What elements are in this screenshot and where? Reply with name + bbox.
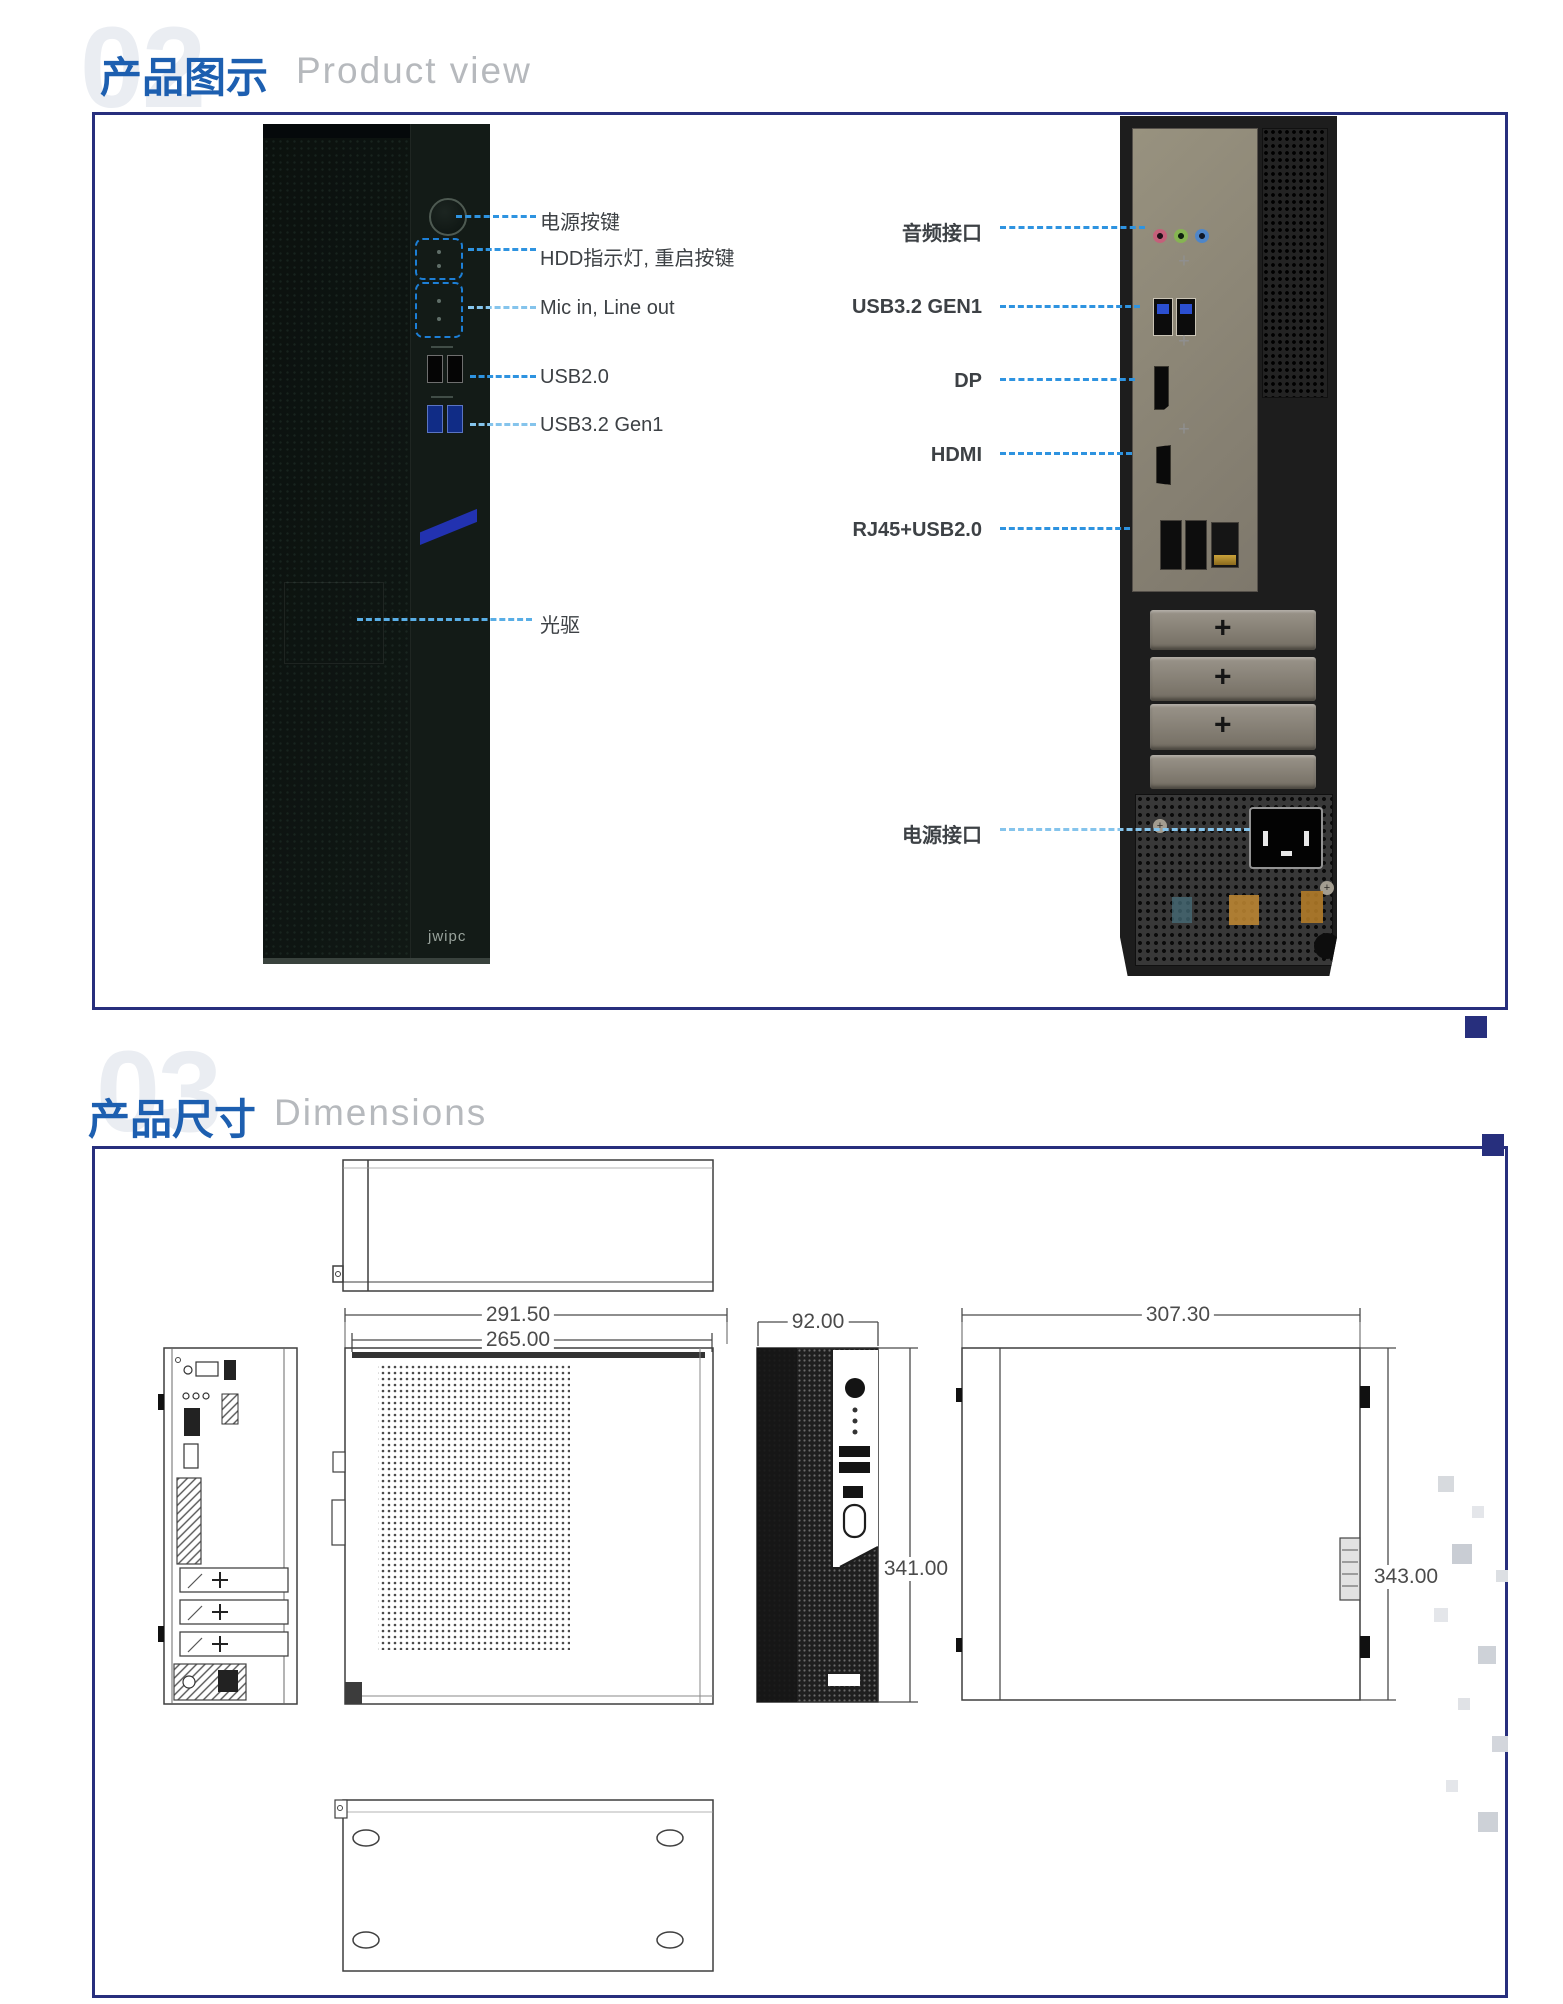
hdmi-port-icon [1156,445,1171,485]
usb-glyph-icon [431,346,453,348]
power-inlet-icon [1249,807,1323,869]
screw-icon: + [1178,331,1190,354]
leader-hdmi [1000,452,1132,455]
label-rj45-usb2: RJ45+USB2.0 [812,519,982,542]
psu-label-patch [1172,897,1192,923]
leader-rj45 [1000,527,1130,530]
leader-dp [1000,378,1135,381]
rear-view-drawing [158,1348,297,1704]
hdd-led-icon [437,250,441,254]
mosaic-square [1452,1544,1472,1564]
mic-jack-icon [437,317,441,321]
mosaic-square [1438,1476,1454,1492]
leader-optical [357,618,532,621]
mosaic-square [1472,1506,1484,1518]
leader-power-socket [1000,828,1250,831]
label-hdd-reset: HDD指示灯, 重启按键 [540,242,734,271]
section2-title-en: Product view [296,50,532,92]
leader-rear-usb32 [1000,305,1140,308]
label-rear-usb32: USB3.2 GEN1 [812,296,982,319]
leader-mic [468,306,536,309]
accent-square-bottom [1465,1016,1487,1038]
line-in-jack-icon [1195,229,1209,243]
label-power-socket: 电源接口 [812,819,982,848]
front-usb2-port-2 [447,355,463,383]
right-side-view-drawing [956,1348,1370,1700]
dim-rear-height: 343.00 [1370,1565,1442,1589]
mosaic-square [1434,1608,1448,1622]
mosaic-square [1478,1646,1496,1664]
thumbscrew-icon: + [1214,709,1232,743]
section3-title-cn: 产品尺寸 [88,1086,256,1147]
rear-vent-grid [1262,128,1328,398]
front-usb3-port-2 [447,405,463,433]
rear-usb2-stack-2 [1185,520,1207,570]
line-out-jack-icon [1174,229,1188,243]
dim-front-width: 291.50 [482,1303,554,1327]
side-view-drawing [757,1348,878,1702]
label-power-button: 电源按键 [540,206,620,235]
usb3-glyph-icon [431,396,453,398]
expansion-slot-cover-3: + [1150,704,1316,750]
mosaic-square [1496,1570,1508,1582]
label-usb3: USB3.2 Gen1 [540,414,663,437]
psu-label-patch [1229,895,1259,925]
brand-logo: jwipc [428,928,466,945]
rear-usb2-stack-1 [1160,520,1182,570]
mosaic-square [1478,1812,1498,1832]
label-optical-drive: 光驱 [540,609,580,638]
headphone-jack-icon [437,299,441,303]
mic-in-jack-icon [1153,229,1167,243]
label-dp: DP [812,370,982,393]
leader-usb2 [470,375,536,378]
label-hdmi: HDMI [812,444,982,467]
dim-front-inner-width: 265.00 [482,1328,554,1352]
dim-depth: 307.30 [1142,1303,1214,1327]
front-usb3-port-1 [427,405,443,433]
leader-usb3 [470,423,536,426]
section2-title-cn: 产品图示 [100,44,268,105]
front-view-drawing [332,1348,713,1704]
front-usb2-port-1 [427,355,443,383]
hdd-led-highlight-box [415,238,463,280]
dp-port-icon [1154,366,1169,410]
expansion-slot-cover-2: + [1150,657,1316,701]
rear-usb3-port-1 [1153,298,1173,336]
screw-icon: + [1178,251,1190,274]
screw-icon: + [1178,419,1190,442]
rear-io-panel [1132,128,1258,592]
label-mic-lineout: Mic in, Line out [540,297,675,320]
leader-audio [1000,226,1145,229]
section3-title-en: Dimensions [274,1092,487,1134]
front-view-photo: jwipc [263,124,490,964]
datasheet-page: 02 产品图示 Product view jwipc 电源按键 HDD指示灯, … [0,0,1563,2004]
audio-jacks-highlight-box [415,282,463,338]
dim-side-width: 92.00 [788,1310,849,1334]
psu-panel: + + [1135,794,1333,966]
expansion-slot-cover-1: + [1150,610,1316,650]
dim-side-height: 341.00 [880,1557,952,1581]
label-usb2: USB2.0 [540,366,609,389]
psu-label-patch [1301,891,1323,923]
rear-view-photo: + + + + + + + + [1120,116,1337,976]
top-view-drawing [333,1160,713,1291]
mosaic-square [1492,1736,1508,1752]
dimension-drawings [92,1148,1508,1996]
thumbscrew-icon: + [1214,612,1232,646]
leader-power [456,215,536,218]
thumbscrew-icon: + [1214,661,1232,695]
expansion-slot-cover-4 [1150,755,1316,789]
mosaic-square [1446,1780,1458,1792]
bottom-view-drawing [335,1800,713,1971]
label-audio-ports: 音频接口 [812,217,982,246]
rj45-port-icon [1211,522,1239,568]
optical-drive-outline [284,582,384,664]
front-base-edge [263,958,490,964]
reset-button-icon [437,264,441,268]
leader-hdd [468,248,536,251]
mosaic-square [1458,1698,1470,1710]
